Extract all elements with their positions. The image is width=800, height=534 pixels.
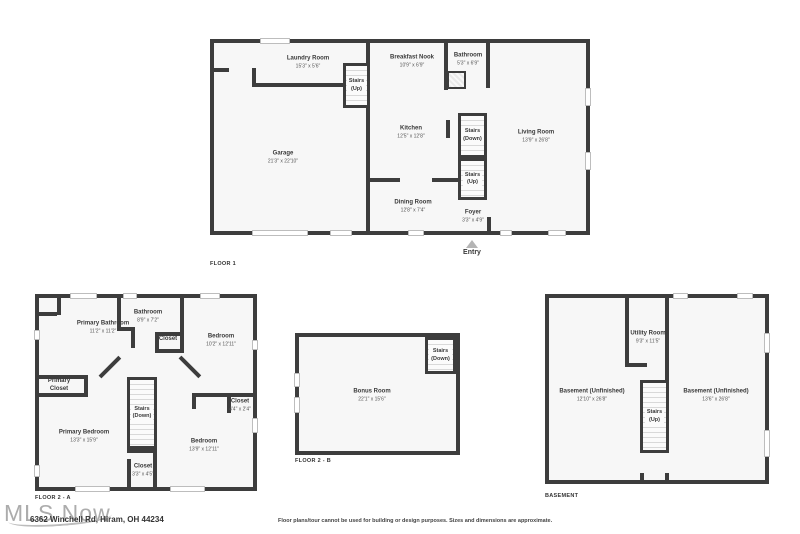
room-name: Bathroom — [134, 310, 162, 318]
room-name: Basement (Unfinished) — [683, 389, 748, 397]
floor2b-plan: Stairs (Down) Bonus Room 22'1" x 15'6" — [295, 333, 460, 455]
room-label-closet: Closet 3'3" x 4'5" — [132, 464, 154, 479]
floor2a-plan: Stairs (Down) Primary Bathroom 11'2" x 1… — [35, 294, 257, 491]
room-dims: 12'8" x 7'4" — [394, 208, 431, 215]
stairs-direction: (Up) — [349, 86, 364, 93]
room-name: Bathroom — [454, 53, 482, 61]
stairs-name: Stairs — [431, 348, 450, 355]
stairs-label: Stairs (Down) — [461, 127, 484, 144]
room-name: Kitchen — [397, 126, 424, 134]
wall — [214, 68, 229, 72]
room-label-bathroom: Bathroom 8'9" x 7'2" — [134, 310, 162, 325]
room-label-closet: Closet 4'4" x 2'4" — [229, 399, 251, 414]
room-name: Closet — [159, 336, 177, 344]
room-dims: 21'3" x 22'10" — [268, 159, 298, 166]
stairs-direction: (Up) — [465, 179, 480, 186]
room-label-dining-room: Dining Room 12'8" x 7'4" — [394, 200, 431, 215]
angled-wall — [99, 356, 122, 379]
window — [170, 486, 205, 492]
room-name: Primary — [48, 378, 70, 386]
window — [330, 230, 352, 236]
room-label-living-room: Living Room 13'9" x 26'8" — [518, 130, 554, 145]
wall — [131, 331, 135, 348]
window — [585, 88, 591, 106]
room-name: Bedroom — [189, 439, 219, 447]
window — [294, 397, 300, 413]
room-name: Foyer — [462, 210, 484, 218]
room-dims: 5'3" x 6'9" — [454, 61, 482, 68]
room-label-kitchen: Kitchen 12'5" x 12'8" — [397, 126, 424, 141]
floor2b-label: FLOOR 2 - B — [295, 458, 331, 464]
window — [200, 293, 220, 299]
stairs-up-box: Stairs (Up) — [458, 158, 487, 200]
room-label-breakfast-nook: Breakfast Nook 10'9" x 6'9" — [390, 55, 434, 70]
room-dims: 13'6" x 26'8" — [683, 397, 748, 404]
room-name: Closet — [48, 386, 70, 394]
room-label-closet: Closet — [159, 336, 177, 344]
angled-wall — [179, 356, 202, 379]
room-label-utility-room: Utility Room 9'3" x 11'5" — [630, 331, 665, 346]
room-name: Laundry Room — [287, 56, 329, 64]
room-name: Garage — [268, 151, 298, 159]
stairs-direction: (Down) — [133, 413, 152, 420]
basement-plan: Stairs (Up) Utility Room 9'3" x 11'5" Ba… — [545, 294, 769, 484]
room-name: Closet — [229, 399, 251, 407]
room-label-primary-bedroom: Primary Bedroom 13'3" x 15'9" — [59, 430, 109, 445]
floor1-plan: Stairs (Up) Stairs (Down) Stairs (Up) L — [210, 39, 590, 235]
floor1-label: FLOOR 1 — [210, 261, 236, 267]
wall — [487, 217, 491, 231]
room-dims: 4'4" x 2'4" — [229, 407, 251, 414]
room-dims: 12'5" x 12'8" — [397, 134, 424, 141]
disclaimer-text: Floor plans/tour cannot be used for buil… — [278, 518, 552, 524]
room-dims: 8'9" x 7'2" — [134, 318, 162, 325]
entry-door — [500, 230, 512, 236]
stairs-name: Stairs — [647, 409, 662, 416]
room-dims: 13'9" x 12'11" — [189, 447, 219, 454]
window — [673, 293, 688, 299]
floor-plan-sheet: Stairs (Up) Stairs (Down) Stairs (Up) L — [0, 0, 800, 534]
wall — [127, 459, 131, 487]
window — [548, 230, 566, 236]
stairs-name: Stairs — [349, 78, 364, 85]
room-label-bonus-room: Bonus Room 22'1" x 15'6" — [353, 389, 390, 404]
room-name: Primary Bathroom — [77, 321, 129, 329]
window — [34, 330, 40, 340]
room-dims: 9'3" x 11'5" — [630, 339, 665, 346]
wall — [625, 363, 647, 367]
stairs-direction: (Down) — [463, 136, 482, 143]
stairs-name: Stairs — [133, 406, 152, 413]
room-name: Bonus Room — [353, 389, 390, 397]
room-label-basement-unfinished-left: Basement (Unfinished) 12'10" x 26'8" — [559, 389, 624, 404]
room-dims: 22'1" x 15'6" — [353, 397, 390, 404]
room-name: Basement (Unfinished) — [559, 389, 624, 397]
window — [75, 486, 110, 492]
wall — [192, 393, 196, 409]
room-dims: 10'9" x 6'9" — [390, 63, 434, 70]
stairs-up-box: Stairs (Up) — [640, 380, 669, 453]
wall — [625, 298, 629, 367]
stairs-name: Stairs — [465, 172, 480, 179]
stairs-label: Stairs (Up) — [645, 408, 664, 425]
entry-label: Entry — [463, 249, 481, 256]
wall — [127, 449, 157, 453]
wall — [486, 43, 490, 88]
window — [764, 333, 770, 353]
room-label-foyer: Foyer 3'3" x 4'9" — [462, 210, 484, 225]
stairs-label: Stairs (Up) — [347, 77, 366, 94]
shower — [447, 71, 466, 89]
room-dims: 15'3" x 5'6" — [287, 64, 329, 71]
window — [294, 373, 300, 387]
room-label-basement-unfinished-right: Basement (Unfinished) 13'6" x 26'8" — [683, 389, 748, 404]
room-name: Bedroom — [206, 334, 236, 342]
stairs-down-box: Stairs (Down) — [458, 113, 487, 158]
wall — [39, 312, 57, 316]
room-label-garage: Garage 21'3" x 22'10" — [268, 151, 298, 166]
property-address: 6362 Winchell Rd, Hiram, OH 44234 — [30, 515, 164, 524]
window — [70, 293, 97, 299]
room-dims: 3'3" x 4'5" — [132, 472, 154, 479]
stairs-down-box: Stairs (Down) — [425, 337, 456, 374]
room-name: Utility Room — [630, 331, 665, 339]
stairs-up-box: Stairs (Up) — [343, 63, 370, 108]
wall — [370, 178, 400, 182]
room-dims: 12'10" x 26'8" — [559, 397, 624, 404]
room-name: Breakfast Nook — [390, 55, 434, 63]
room-dims: 11'2" x 11'2" — [77, 329, 129, 336]
garage-door — [252, 230, 308, 236]
room-name: Closet — [132, 464, 154, 472]
entry-arrow-icon — [466, 240, 478, 248]
wall — [432, 178, 458, 182]
stairs-direction: (Down) — [431, 356, 450, 363]
room-label-laundry: Laundry Room 15'3" x 5'6" — [287, 56, 329, 71]
room-name: Primary Bedroom — [59, 430, 109, 438]
wall — [192, 393, 253, 397]
window — [260, 38, 290, 44]
stairs-label: Stairs (Down) — [131, 405, 154, 422]
wall — [640, 473, 644, 482]
room-name: Dining Room — [394, 200, 431, 208]
basement-label: BASEMENT — [545, 493, 578, 499]
wall — [446, 120, 450, 138]
stairs-label: Stairs (Down) — [429, 347, 452, 364]
stairs-down-box: Stairs (Down) — [127, 377, 157, 449]
window — [34, 465, 40, 477]
window — [123, 293, 137, 299]
wall — [57, 298, 61, 315]
wall — [252, 83, 346, 87]
room-dims: 10'2" x 12'11" — [206, 342, 236, 349]
room-name: Living Room — [518, 130, 554, 138]
window — [764, 430, 770, 457]
wall — [665, 473, 669, 482]
window — [252, 418, 258, 433]
window — [408, 230, 424, 236]
stairs-direction: (Up) — [647, 417, 662, 424]
window — [585, 152, 591, 170]
window — [252, 340, 258, 350]
stairs-name: Stairs — [463, 128, 482, 135]
room-dims: 13'3" x 15'9" — [59, 438, 109, 445]
room-label-primary-bathroom: Primary Bathroom 11'2" x 11'2" — [77, 321, 129, 336]
stairs-label: Stairs (Up) — [463, 171, 482, 188]
window — [737, 293, 753, 299]
wall — [180, 298, 184, 353]
room-label-bedroom: Bedroom 10'2" x 12'11" — [206, 334, 236, 349]
room-label-bedroom: Bedroom 13'9" x 12'11" — [189, 439, 219, 454]
room-label-primary-closet: Primary Closet — [48, 378, 70, 394]
room-dims: 13'9" x 26'8" — [518, 138, 554, 145]
room-dims: 3'3" x 4'9" — [462, 218, 484, 225]
room-label-bathroom: Bathroom 5'3" x 6'9" — [454, 53, 482, 68]
